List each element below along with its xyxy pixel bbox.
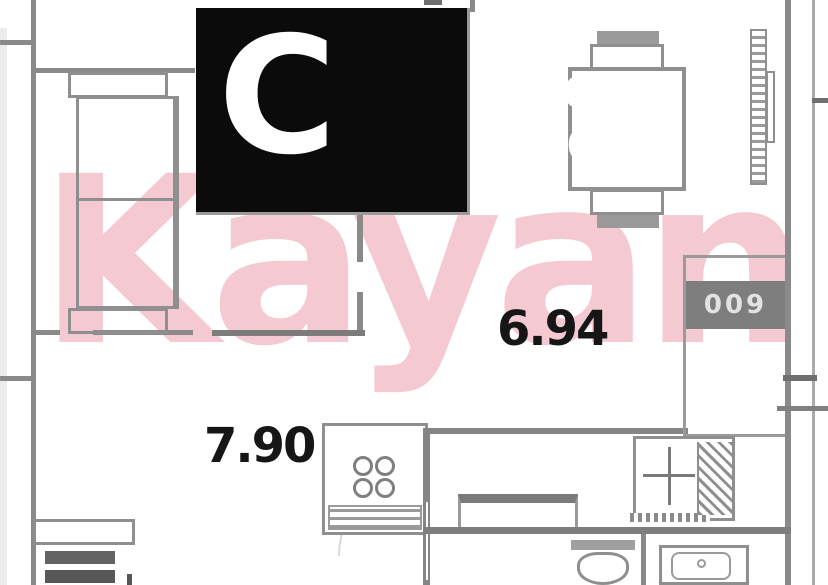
wall-top-stub [470, 0, 475, 12]
wall-right [785, 0, 791, 585]
toilet-tank [571, 540, 635, 550]
cabinet-mark [127, 574, 132, 585]
radiator [750, 29, 767, 185]
room-label-kitchen: 6.94 [497, 305, 607, 353]
unit-areas: 7,90 22,67 26,68 [494, 24, 623, 168]
appliance-code-label: 009 [704, 290, 767, 320]
floor-plan: Kayan С 7,90 22,67 26,68 7.90 6.94 [0, 0, 828, 585]
sink-drainboard [697, 442, 732, 515]
wall-bathroom-divider [641, 534, 646, 585]
wall-joint-tick-left-mid [0, 376, 36, 381]
radiator-valve [766, 71, 775, 143]
chair-bottom-backrest [597, 215, 659, 228]
sofa-body [76, 96, 179, 309]
stove-burner-1 [353, 456, 373, 476]
wall-mid-seg-1 [33, 330, 60, 335]
unit-type-letter: С [218, 16, 337, 178]
stove-burner-4 [375, 478, 395, 498]
area-kitchen-value: 7,90 [494, 24, 575, 60]
wall-joint-tick-right-mid [783, 375, 817, 381]
washbasin-drain [697, 559, 706, 568]
cabinet-shelf-1 [45, 551, 115, 564]
wall-joint-tick-right-top [812, 98, 828, 103]
wall-mid-seg-3 [212, 330, 365, 336]
stove-burner-3 [353, 478, 373, 498]
wall-top-tick [424, 0, 442, 5]
wall-joint-tick-right-low [777, 406, 828, 411]
kitchen-appliance: 009 [686, 281, 785, 329]
wall-bathroom-top [423, 527, 791, 534]
sink-cross-horizontal [643, 474, 695, 477]
wall-kitchen-horizontal [430, 428, 688, 434]
door-jamb-line [426, 502, 428, 580]
wall-left [31, 0, 36, 585]
wall-joint-tick-left-top [0, 40, 36, 45]
wall-right-inner [812, 0, 815, 585]
sofa-cushion-divider [79, 198, 173, 201]
sofa-armrest-bottom [68, 308, 168, 334]
stove-burner-2 [375, 456, 395, 476]
toilet-bowl [577, 552, 629, 585]
cabinet-outline [33, 519, 135, 545]
stove-oven-bar [328, 505, 422, 530]
cabinet-shelf-2 [45, 570, 115, 583]
sofa-armrest-top [68, 72, 168, 98]
exterior-wall-strip [0, 28, 7, 585]
area-living-value: 22,67 [494, 72, 617, 114]
chair-bottom-seat [590, 189, 664, 215]
area-total-value: 26,68 [494, 124, 623, 168]
room-label-living: 7.90 [204, 422, 314, 470]
partition-upper [357, 215, 363, 262]
unit-info-box: С 7,90 22,67 26,68 [196, 8, 470, 215]
